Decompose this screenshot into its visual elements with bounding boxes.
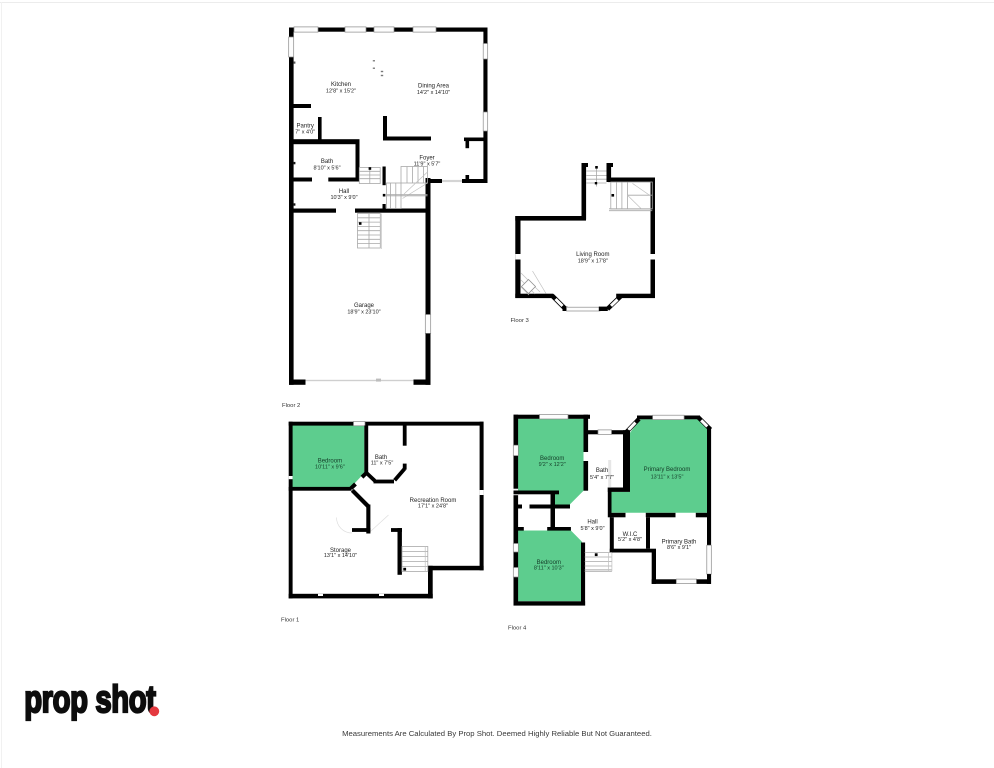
svg-text:13'1" x 14'10": 13'1" x 14'10"	[324, 553, 357, 559]
svg-text:Floor 1: Floor 1	[281, 618, 299, 624]
svg-text:18'9" x 17'8": 18'9" x 17'8"	[578, 259, 608, 265]
svg-text:Floor 2: Floor 2	[282, 403, 300, 409]
svg-text:8'6" x 9'1": 8'6" x 9'1"	[667, 545, 691, 551]
svg-text:12'8" x 15'2": 12'8" x 15'2"	[326, 88, 356, 94]
svg-text:13'11" x 13'5": 13'11" x 13'5"	[651, 475, 684, 481]
svg-text:5'8" x 9'0": 5'8" x 9'0"	[580, 526, 604, 532]
svg-text:Living Room: Living Room	[576, 252, 609, 258]
svg-text:Bedroom: Bedroom	[540, 456, 564, 462]
svg-text:14'2" x 14'10": 14'2" x 14'10"	[417, 90, 450, 96]
svg-text:11" x 7'5": 11" x 7'5"	[371, 461, 394, 467]
svg-text:8'11" x 10'3": 8'11" x 10'3"	[534, 565, 564, 571]
svg-text:Hall: Hall	[339, 189, 349, 195]
svg-text:Floor 4: Floor 4	[508, 626, 527, 632]
svg-text:Measurements Are Calculated By: Measurements Are Calculated By Prop Shot…	[342, 729, 652, 738]
svg-text:11'9" x 5'7": 11'9" x 5'7"	[414, 162, 441, 168]
svg-text:Pantry: Pantry	[297, 123, 314, 129]
svg-text:10'11" x 9'6": 10'11" x 9'6"	[315, 465, 345, 471]
svg-text:5'2" x 4'8": 5'2" x 4'8"	[618, 537, 642, 543]
svg-text:Floor 3: Floor 3	[511, 318, 530, 324]
svg-text:Primary Bedroom: Primary Bedroom	[644, 467, 691, 473]
svg-text:prop shot: prop shot	[24, 678, 156, 721]
svg-text:7" x 4'0": 7" x 4'0"	[295, 130, 315, 136]
svg-text:10'3" x 9'0": 10'3" x 9'0"	[330, 195, 357, 201]
svg-text:Bath: Bath	[596, 468, 608, 474]
svg-text:Kitchen: Kitchen	[331, 82, 351, 88]
svg-text:17'1" x 24'8": 17'1" x 24'8"	[418, 504, 448, 510]
svg-text:Bath: Bath	[321, 159, 333, 165]
svg-text:Hall: Hall	[587, 520, 597, 526]
svg-text:Garage: Garage	[354, 303, 375, 309]
svg-text:18'9" x 23'10": 18'9" x 23'10"	[347, 310, 380, 316]
svg-text:9'2" x 12'2": 9'2" x 12'2"	[539, 462, 566, 468]
svg-text:5'4" x 7'7": 5'4" x 7'7"	[590, 475, 614, 481]
svg-text:Dining Area: Dining Area	[418, 84, 450, 90]
svg-text:8'10" x 5'6": 8'10" x 5'6"	[313, 165, 340, 171]
